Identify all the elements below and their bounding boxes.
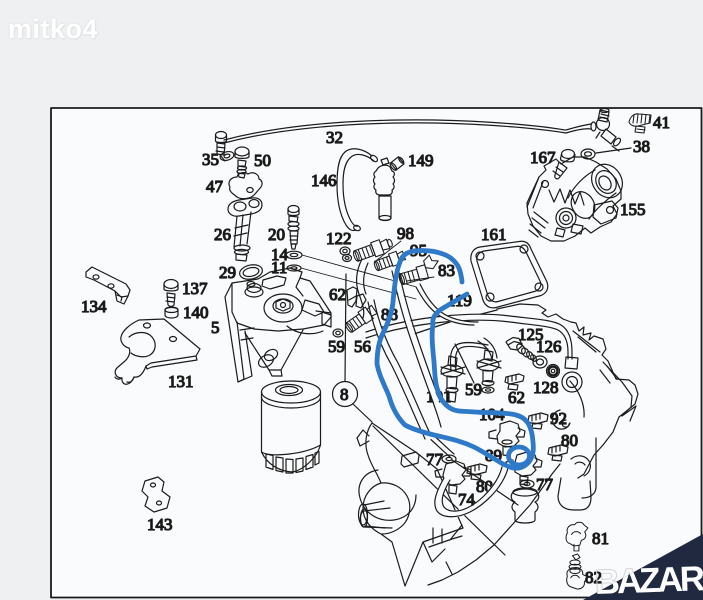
svg-text:59: 59 bbox=[328, 337, 345, 356]
svg-text:59: 59 bbox=[465, 380, 482, 399]
svg-text:146: 146 bbox=[311, 171, 337, 190]
svg-text:56: 56 bbox=[354, 337, 371, 356]
svg-text:140: 140 bbox=[183, 303, 209, 322]
svg-text:161: 161 bbox=[481, 225, 507, 244]
svg-text:155: 155 bbox=[620, 200, 646, 219]
svg-text:50: 50 bbox=[254, 151, 271, 170]
svg-text:8: 8 bbox=[340, 385, 349, 404]
svg-text:62: 62 bbox=[329, 285, 346, 304]
svg-text:5: 5 bbox=[211, 318, 220, 337]
svg-text:26: 26 bbox=[214, 225, 231, 244]
svg-text:77: 77 bbox=[426, 450, 444, 469]
svg-text:134: 134 bbox=[81, 297, 107, 316]
svg-text:11: 11 bbox=[271, 258, 287, 277]
svg-text:35: 35 bbox=[202, 150, 219, 169]
svg-text:126: 126 bbox=[536, 337, 562, 356]
svg-text:20: 20 bbox=[268, 225, 285, 244]
svg-text:128: 128 bbox=[533, 378, 559, 397]
svg-text:143: 143 bbox=[147, 515, 173, 534]
svg-text:92: 92 bbox=[550, 409, 567, 428]
svg-text:81: 81 bbox=[592, 529, 609, 548]
svg-text:80: 80 bbox=[561, 431, 578, 450]
svg-text:167: 167 bbox=[530, 148, 556, 167]
svg-text:62: 62 bbox=[508, 388, 525, 407]
svg-text:149: 149 bbox=[408, 151, 434, 170]
svg-text:41: 41 bbox=[653, 113, 670, 132]
svg-text:122: 122 bbox=[326, 229, 352, 248]
svg-text:29: 29 bbox=[219, 263, 236, 282]
svg-text:47: 47 bbox=[206, 177, 224, 196]
svg-text:74: 74 bbox=[458, 490, 476, 509]
svg-text:38: 38 bbox=[633, 137, 650, 156]
svg-text:83: 83 bbox=[438, 261, 455, 280]
svg-text:137: 137 bbox=[182, 279, 208, 298]
svg-text:77: 77 bbox=[536, 475, 554, 494]
svg-text:32: 32 bbox=[326, 128, 343, 147]
svg-text:131: 131 bbox=[168, 372, 194, 391]
